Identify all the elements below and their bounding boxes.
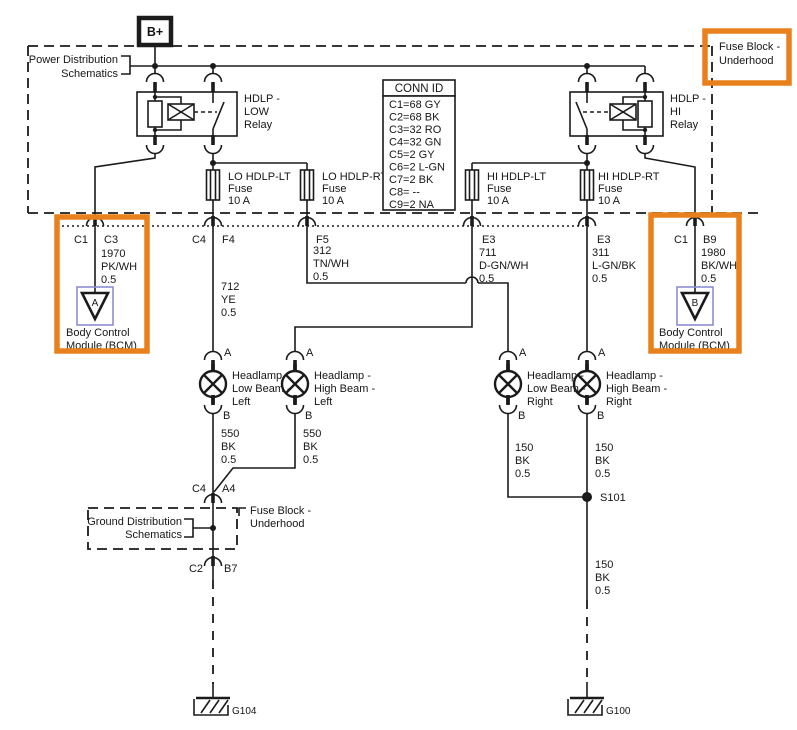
wire-1980-label: 1980 (701, 247, 725, 259)
relay-hi-label-2: HI (670, 106, 681, 118)
pin-label-c1-left: C1 (74, 234, 88, 246)
wire-312-label: 312 (313, 245, 331, 257)
power-distribution-label-2: Schematics (61, 68, 118, 80)
ground-distribution-label-1: Ground Distribution (87, 516, 182, 528)
ground-label-g100: G100 (606, 706, 631, 717)
wiring-diagram-headlamps: B+ Power Distribution Schematics Fuse Bl… (0, 0, 797, 730)
headlamp-low-left: A B Headlamp - Low Beam - Left (200, 347, 291, 422)
pin-label-b7: B7 (224, 563, 237, 575)
conn-id-row: C4=32 GN (389, 137, 441, 149)
wire-150-bottom-gauge: 0.5 (595, 585, 610, 597)
wire-1970-gauge: 0.5 (101, 274, 116, 286)
fuse-lo-lt-label-2: Fuse (228, 183, 252, 195)
headlamp-low-left-label-3: Left (232, 396, 250, 408)
wire-550-right-label: 550 (303, 428, 321, 440)
conn-id-row: C6=2 L-GN (389, 162, 445, 174)
power-distribution-callout: Power Distribution Schematics (29, 54, 130, 80)
fuse-hi-hdlp-rt (581, 170, 594, 200)
hdlp-hi-relay: HDLP - HI Relay (570, 66, 706, 154)
relay-hi-box (570, 92, 663, 136)
relay-low-label-2: LOW (244, 106, 270, 118)
pin-label-c3: C3 (104, 234, 118, 246)
conn-id-row: C3=32 RO (389, 124, 442, 136)
ground-distribution-label-2: Schematics (125, 529, 182, 541)
ground-label-g104: G104 (232, 706, 257, 717)
conn-id-title: CONN ID (395, 83, 444, 95)
fuse-lo-hdlp-lt (207, 170, 220, 200)
wire-311-label: 311 (592, 247, 610, 259)
wire-1980-color: BK/WH (701, 260, 737, 272)
ground-symbol-g104 (194, 682, 230, 715)
bcm-right-id: B (692, 298, 699, 309)
fuse-block-top-label-2: Underhood (719, 55, 773, 67)
power-distribution-label-1: Power Distribution (29, 54, 118, 66)
lamp-pin-b: B (597, 410, 604, 422)
fuse-hi-lt-label-3: 10 A (487, 195, 510, 207)
conn-id-row: C7=2 BK (389, 174, 434, 186)
fuse-lo-lt-label-3: 10 A (228, 195, 251, 207)
relay-hi-label-3: Relay (670, 119, 699, 131)
wire-311-color: L-GN/BK (592, 260, 637, 272)
pin-label-b9: B9 (703, 234, 716, 246)
wire-550-left-gauge: 0.5 (221, 454, 236, 466)
bcm-right-label-1: Body Control (659, 327, 723, 339)
pin-label-c1-right: C1 (674, 234, 688, 246)
pin-label-e3-right: E3 (597, 234, 610, 246)
fuse-hi-lt-label-1: HI HDLP-LT (487, 171, 546, 183)
lamp-pin-a: A (306, 347, 314, 359)
wire-712-gauge: 0.5 (221, 307, 236, 319)
pin-label-e3-left: E3 (482, 234, 495, 246)
wire-1970-label: 1970 (101, 248, 125, 260)
lamp-pin-b: B (223, 410, 230, 422)
pin-label-f4: F4 (222, 234, 235, 246)
wire-711-color: D-GN/WH (479, 260, 529, 272)
conn-id-row: C9=2 NA (389, 199, 435, 211)
headlamp-high-left-label-2: High Beam - (314, 383, 375, 395)
wire-711-gauge: 0.5 (479, 273, 494, 285)
fuse-block-top-callout: Fuse Block - Underhood (705, 31, 789, 83)
relay-low-label-1: HDLP - (244, 93, 280, 105)
battery-feed: B+ (130, 18, 645, 69)
pin-label-c4: C4 (192, 234, 206, 246)
wire-312-color: TN/WH (313, 258, 349, 270)
wire-150-high-label: 150 (595, 442, 613, 454)
wire-150-bottom-label: 150 (595, 559, 613, 571)
wire-312-gauge: 0.5 (313, 271, 328, 283)
fuse-block-top-label-1: Fuse Block - (719, 41, 780, 53)
wire-712-color: YE (221, 294, 236, 306)
fuse-lo-lt-label-1: LO HDLP-LT (228, 171, 291, 183)
headlamp-high-right-label-1: Headlamp - (606, 370, 663, 382)
fuse-lo-rt-label-3: 10 A (322, 195, 345, 207)
fuse-lo-hdlp-rt (301, 170, 314, 200)
pin-label-a4: A4 (222, 483, 235, 495)
callout-bracket (184, 519, 193, 537)
headlamp-high-left-label-1: Headlamp - (314, 370, 371, 382)
fuse-hi-rt-label-1: HI HDLP-RT (598, 171, 660, 183)
wire-711-label: 711 (479, 247, 497, 259)
wire-150-low-color: BK (515, 455, 530, 467)
wire-150-high-color: BK (595, 455, 610, 467)
lamp-pin-a: A (224, 347, 232, 359)
fuse-hi-lt-label-2: Fuse (487, 183, 511, 195)
wire-150-low-gauge: 0.5 (515, 468, 530, 480)
headlamp-low-right-label-3: Right (527, 396, 553, 408)
headlamp-high-left-label-3: Left (314, 396, 332, 408)
fuse-hi-rt-label-2: Fuse (598, 183, 622, 195)
fuse-lo-rt-label-1: LO HDLP-RT (322, 171, 387, 183)
relay-hi-label-1: HDLP - (670, 93, 706, 105)
splice-s101 (582, 492, 592, 502)
conn-id-table: CONN ID C1=68 GY C2=68 BK C3=32 RO C4=32… (383, 80, 455, 211)
conn-id-row: C2=68 BK (389, 112, 440, 124)
headlamp-high-right-label-3: Right (606, 396, 632, 408)
bcm-left-id: A (92, 298, 99, 309)
headlamp-low-right: A B Headlamp - Low Beam - Right (495, 347, 586, 422)
bcm-left-label-1: Body Control (66, 327, 130, 339)
ground-symbol-g100 (568, 682, 604, 715)
wire-550-right-gauge: 0.5 (303, 454, 318, 466)
wire-550-left-label: 550 (221, 428, 239, 440)
conn-id-row: C8= -- (389, 187, 420, 199)
wire-150-low-label: 150 (515, 442, 533, 454)
fuse-hi-hdlp-lt (466, 170, 479, 200)
relay-low-label-3: Relay (244, 119, 273, 131)
right-ground-path: 150 BK 0.5 150 BK 0.5 S101 150 BK 0.5 G1… (508, 413, 631, 717)
conn-id-row: C1=68 GY (389, 99, 441, 111)
relay-low-box (137, 92, 237, 136)
wire-550-left-color: BK (221, 441, 236, 453)
splice-label: S101 (600, 492, 626, 504)
wire-150-high-gauge: 0.5 (595, 468, 610, 480)
hdlp-low-relay: HDLP - LOW Relay (137, 66, 280, 154)
lamp-pin-a: A (519, 347, 527, 359)
pin-label-c4-ground: C4 (192, 483, 206, 495)
fuse-block-mid-label-1: Fuse Block - (250, 505, 311, 517)
fuse-block-mid-label-2: Underhood (250, 518, 304, 530)
wire-1980-gauge: 0.5 (701, 273, 716, 285)
fuse-hi-rt-label-3: 10 A (598, 195, 621, 207)
callout-bracket (121, 56, 130, 74)
battery-label: B+ (147, 25, 163, 39)
left-ground-path: 550 BK 0.5 550 BK 0.5 C4 A4 Ground Distr… (87, 413, 321, 717)
wire-550-right-color: BK (303, 441, 318, 453)
wire-311-gauge: 0.5 (592, 273, 607, 285)
wire-712-label: 712 (221, 281, 239, 293)
headlamp-high-right-label-2: High Beam - (606, 383, 667, 395)
callout-bracket-small (239, 508, 246, 516)
headlamp-high-right: A B Headlamp - High Beam - Right (574, 347, 667, 422)
pin-label-c2: C2 (189, 563, 203, 575)
conn-id-row: C5=2 GY (389, 149, 435, 161)
headlamp-high-left: A B Headlamp - High Beam - Left (282, 347, 375, 422)
headlamp-low-left-label-1: Headlamp - (232, 370, 289, 382)
lamp-pin-b: B (305, 410, 312, 422)
wire-1970-color: PK/WH (101, 261, 137, 273)
lamp-pin-b: B (518, 410, 525, 422)
lamp-pin-a: A (598, 347, 606, 359)
schematic-canvas: B+ Power Distribution Schematics Fuse Bl… (0, 0, 797, 730)
fuse-lo-rt-label-2: Fuse (322, 183, 346, 195)
wire-150-bottom-color: BK (595, 572, 610, 584)
